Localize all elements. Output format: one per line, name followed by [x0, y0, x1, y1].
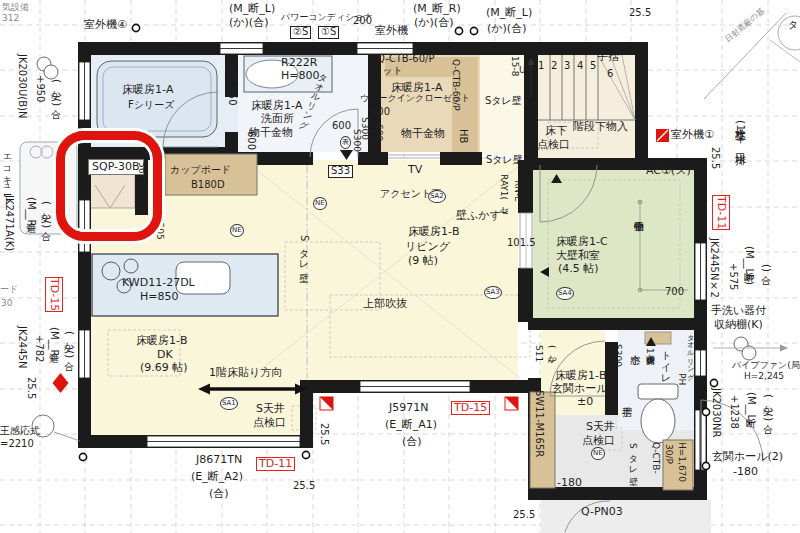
floorplan-screenshot: 気設備312室外機④(M_断_L)(か)(合)パワーコンディショナ②S①S200…	[0, 0, 800, 533]
half-red-square	[505, 397, 518, 410]
selection-highlight-annotation	[56, 131, 162, 241]
sensor-circle	[32, 415, 54, 437]
red-diamond	[53, 373, 69, 393]
half-red-square	[320, 397, 333, 410]
omote-triangle	[340, 150, 353, 160]
kitchen-sink	[176, 262, 230, 294]
cupboard	[165, 154, 257, 195]
bathtub	[97, 61, 217, 137]
compass-circle	[778, 16, 800, 50]
sliding-door-sw11	[530, 392, 555, 488]
floorplan-drawing	[0, 0, 800, 533]
toilet-tank	[638, 384, 678, 399]
shoe-cabinet	[663, 440, 693, 490]
toilet-bowl	[641, 399, 675, 443]
